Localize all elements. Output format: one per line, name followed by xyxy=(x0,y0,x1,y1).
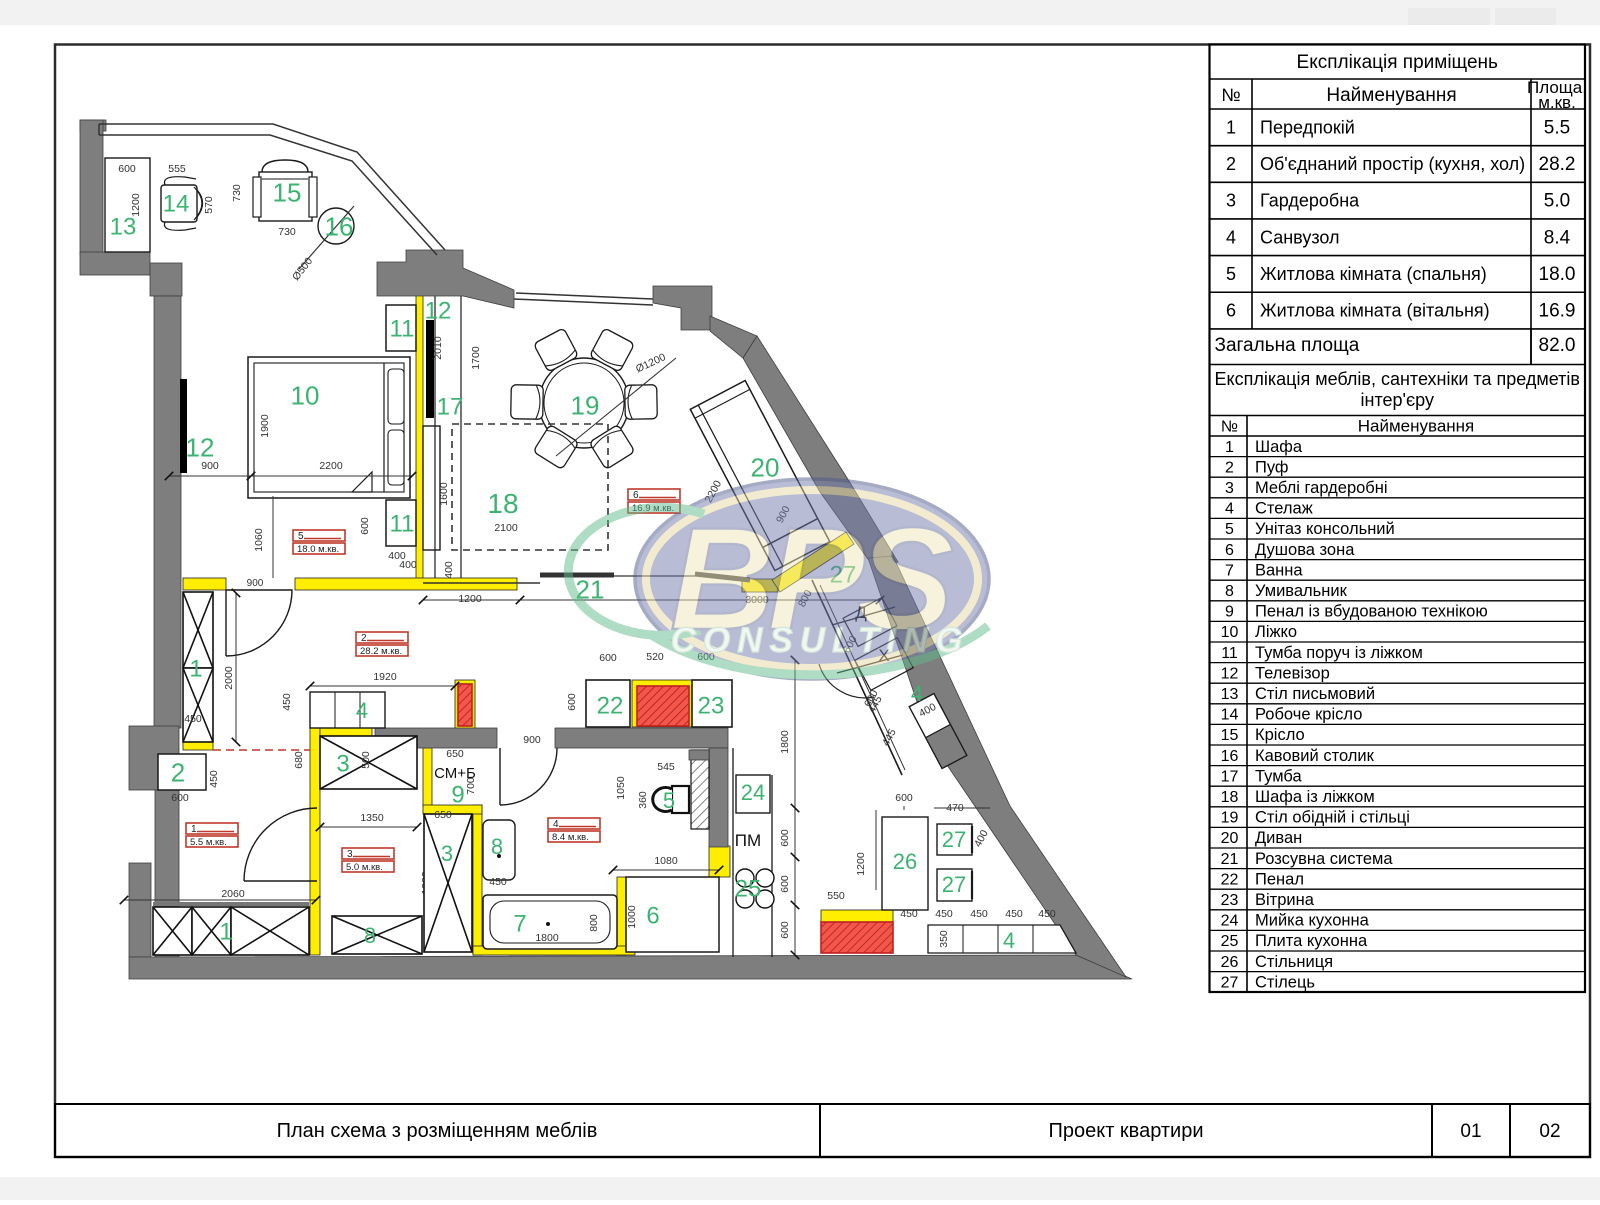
svg-text:18.0: 18.0 xyxy=(1539,264,1576,285)
svg-text:02: 02 xyxy=(1539,1121,1560,1142)
svg-text:18: 18 xyxy=(1221,789,1239,806)
svg-text:Стілець: Стілець xyxy=(1255,973,1315,991)
svg-text:470: 470 xyxy=(946,802,964,814)
svg-text:650: 650 xyxy=(434,809,452,821)
svg-text:450: 450 xyxy=(184,713,202,725)
svg-text:450: 450 xyxy=(935,908,953,920)
svg-text:4: 4 xyxy=(1225,501,1234,518)
svg-text:Санвузол: Санвузол xyxy=(1260,227,1340,247)
svg-text:Шафа із ліжком: Шафа із ліжком xyxy=(1255,788,1375,806)
svg-text:CONSULTING: CONSULTING xyxy=(671,621,970,660)
svg-text:12: 12 xyxy=(1221,665,1239,682)
svg-text:Експлікація приміщень: Експлікація приміщень xyxy=(1297,52,1498,73)
svg-text:650: 650 xyxy=(446,748,464,760)
svg-text:Ванна: Ванна xyxy=(1255,561,1303,579)
svg-text:Душова зона: Душова зона xyxy=(1255,541,1355,559)
svg-text:Житлова кімната (вітальня): Житлова кімната (вітальня) xyxy=(1260,301,1490,321)
svg-text:Кавовий столик: Кавовий столик xyxy=(1255,747,1375,765)
svg-text:10: 10 xyxy=(291,380,320,410)
svg-text:5.5 м.кв.: 5.5 м.кв. xyxy=(190,837,227,848)
svg-text:1: 1 xyxy=(1226,117,1236,137)
svg-text:730: 730 xyxy=(278,226,296,238)
svg-text:22: 22 xyxy=(1221,871,1239,888)
svg-text:8.4 м.кв.: 8.4 м.кв. xyxy=(552,832,589,843)
svg-text:18.0 м.кв.: 18.0 м.кв. xyxy=(297,544,339,555)
svg-text:1050: 1050 xyxy=(615,776,627,800)
svg-text:450: 450 xyxy=(1005,908,1023,920)
svg-text:600: 600 xyxy=(779,921,791,939)
svg-text:Гардеробна: Гардеробна xyxy=(1260,191,1360,211)
svg-text:8.4: 8.4 xyxy=(1544,227,1571,248)
svg-text:600: 600 xyxy=(779,875,791,893)
svg-text:№: № xyxy=(1221,85,1240,105)
svg-text:1: 1 xyxy=(1225,439,1234,456)
svg-text:450: 450 xyxy=(1038,908,1056,920)
svg-text:Пуф: Пуф xyxy=(1255,458,1289,476)
svg-text:1: 1 xyxy=(219,919,232,946)
svg-text:15: 15 xyxy=(1221,727,1239,744)
svg-text:1080: 1080 xyxy=(654,855,678,867)
svg-text:7: 7 xyxy=(513,911,526,938)
svg-text:11: 11 xyxy=(1221,645,1238,662)
svg-text:6: 6 xyxy=(633,490,639,501)
svg-text:8: 8 xyxy=(1225,583,1234,600)
svg-text:19: 19 xyxy=(1221,810,1239,827)
svg-text:10: 10 xyxy=(1221,624,1239,641)
svg-text:4: 4 xyxy=(1226,227,1236,247)
svg-text:Диван: Диван xyxy=(1255,829,1302,847)
svg-text:5.0 м.кв.: 5.0 м.кв. xyxy=(346,862,383,873)
svg-text:545: 545 xyxy=(657,761,675,773)
svg-text:400: 400 xyxy=(388,550,406,562)
svg-text:350: 350 xyxy=(938,930,950,948)
svg-text:12: 12 xyxy=(425,298,452,325)
svg-text:23: 23 xyxy=(698,693,725,720)
svg-text:2200: 2200 xyxy=(319,460,343,472)
svg-text:6: 6 xyxy=(646,903,659,930)
svg-text:25: 25 xyxy=(1221,933,1239,950)
svg-text:5.5: 5.5 xyxy=(1544,117,1570,138)
svg-text:450: 450 xyxy=(900,908,918,920)
svg-text:5: 5 xyxy=(663,788,675,813)
svg-text:Найменування: Найменування xyxy=(1326,85,1456,106)
svg-text:1800: 1800 xyxy=(535,932,559,944)
svg-text:360: 360 xyxy=(637,791,649,809)
svg-text:600: 600 xyxy=(118,163,136,175)
svg-text:4: 4 xyxy=(356,698,368,723)
svg-text:2010: 2010 xyxy=(432,336,444,360)
svg-text:2100: 2100 xyxy=(494,522,518,534)
svg-text:5: 5 xyxy=(1226,264,1236,284)
svg-text:1900: 1900 xyxy=(259,414,271,438)
svg-text:8: 8 xyxy=(364,923,376,948)
svg-text:19: 19 xyxy=(571,390,600,420)
svg-text:24: 24 xyxy=(741,780,765,805)
svg-text:№: № xyxy=(1221,419,1238,436)
svg-text:Плита кухонна: Плита кухонна xyxy=(1255,932,1368,950)
svg-text:16.9: 16.9 xyxy=(1539,301,1576,322)
svg-text:800: 800 xyxy=(588,914,600,932)
svg-text:Унітаз консольний: Унітаз консольний xyxy=(1255,520,1395,538)
svg-text:01: 01 xyxy=(1460,1121,1481,1142)
svg-text:Робоче крісло: Робоче крісло xyxy=(1255,706,1362,724)
svg-text:1800: 1800 xyxy=(779,730,791,754)
svg-text:2000: 2000 xyxy=(223,666,235,690)
svg-text:6: 6 xyxy=(1226,301,1236,321)
svg-text:8: 8 xyxy=(491,834,503,859)
svg-text:27: 27 xyxy=(1221,974,1239,991)
svg-text:600: 600 xyxy=(779,829,791,847)
svg-text:Експлікація меблів, сантехніки: Експлікація меблів, сантехніки та предме… xyxy=(1215,369,1580,389)
svg-text:1920: 1920 xyxy=(373,671,397,683)
svg-text:Тумба: Тумба xyxy=(1255,767,1302,785)
svg-text:4: 4 xyxy=(911,681,923,706)
svg-text:9: 9 xyxy=(451,782,464,809)
svg-text:450: 450 xyxy=(489,876,507,888)
svg-text:План схема з розміщенням меблі: План схема з розміщенням меблів xyxy=(277,1120,598,1142)
svg-text:900: 900 xyxy=(247,578,264,589)
svg-text:13: 13 xyxy=(1221,686,1239,703)
svg-text:18: 18 xyxy=(487,488,518,519)
svg-text:1350: 1350 xyxy=(360,812,384,824)
svg-text:Стіл письмовий: Стіл письмовий xyxy=(1255,685,1375,703)
svg-text:24: 24 xyxy=(1221,913,1239,930)
svg-text:Об'єднаний простір (кухня, хол: Об'єднаний простір (кухня, хол) xyxy=(1260,154,1525,174)
svg-text:27: 27 xyxy=(942,827,966,852)
svg-text:Проект квартири: Проект квартири xyxy=(1048,1120,1203,1142)
svg-text:2: 2 xyxy=(361,633,367,644)
svg-text:20: 20 xyxy=(1221,830,1239,847)
svg-text:600: 600 xyxy=(171,792,189,804)
svg-text:26: 26 xyxy=(893,849,917,874)
svg-text:Вітрина: Вітрина xyxy=(1255,891,1315,909)
svg-text:1000: 1000 xyxy=(626,905,638,929)
svg-text:Тумба поруч із ліжком: Тумба поруч із ліжком xyxy=(1255,644,1423,662)
svg-text:1: 1 xyxy=(191,824,197,835)
svg-text:680: 680 xyxy=(293,751,305,769)
svg-text:3: 3 xyxy=(347,849,353,860)
svg-text:3: 3 xyxy=(441,841,453,866)
svg-text:Ліжко: Ліжко xyxy=(1255,623,1297,641)
svg-text:Мийка кухонна: Мийка кухонна xyxy=(1255,912,1370,930)
svg-text:15: 15 xyxy=(273,177,302,207)
svg-text:82.0: 82.0 xyxy=(1539,335,1576,356)
svg-text:13: 13 xyxy=(110,214,137,241)
svg-text:Найменування: Найменування xyxy=(1358,417,1475,436)
svg-text:Загальна площа: Загальна площа xyxy=(1215,335,1360,356)
svg-text:22: 22 xyxy=(597,693,624,720)
svg-text:Передпокій: Передпокій xyxy=(1260,117,1355,137)
svg-text:16: 16 xyxy=(325,211,354,241)
svg-text:2: 2 xyxy=(171,757,185,787)
svg-text:550: 550 xyxy=(827,890,845,902)
svg-text:11: 11 xyxy=(390,316,415,343)
svg-text:23: 23 xyxy=(1221,892,1239,909)
svg-text:1200: 1200 xyxy=(458,593,482,605)
svg-text:Стіл обідній і стільці: Стіл обідній і стільці xyxy=(1255,809,1410,827)
svg-text:2: 2 xyxy=(1226,154,1236,174)
svg-text:СМ+Б: СМ+Б xyxy=(434,765,476,782)
svg-text:Меблі гардеробні: Меблі гардеробні xyxy=(1255,479,1388,497)
svg-text:730: 730 xyxy=(231,184,243,202)
svg-text:Розсувна система: Розсувна система xyxy=(1255,850,1393,868)
svg-text:11: 11 xyxy=(390,511,415,538)
svg-text:450: 450 xyxy=(281,693,293,711)
svg-text:5: 5 xyxy=(298,531,304,542)
svg-text:25: 25 xyxy=(735,876,762,903)
svg-text:4: 4 xyxy=(1003,928,1015,953)
svg-text:17: 17 xyxy=(1221,768,1239,785)
svg-text:1600: 1600 xyxy=(438,482,450,506)
svg-text:ПМ: ПМ xyxy=(735,831,761,850)
svg-text:555: 555 xyxy=(168,163,186,175)
svg-text:1060: 1060 xyxy=(253,528,265,552)
svg-text:9: 9 xyxy=(1225,604,1234,621)
svg-text:Шафа: Шафа xyxy=(1255,438,1303,456)
svg-text:3: 3 xyxy=(336,751,349,778)
svg-text:1200: 1200 xyxy=(855,852,867,876)
svg-text:500: 500 xyxy=(360,751,372,769)
svg-text:17: 17 xyxy=(437,394,464,421)
svg-text:інтер'єру: інтер'єру xyxy=(1361,390,1434,410)
svg-text:Крісло: Крісло xyxy=(1255,726,1305,744)
svg-text:28.2: 28.2 xyxy=(1539,154,1576,175)
svg-text:600: 600 xyxy=(599,652,617,664)
svg-text:900: 900 xyxy=(523,734,541,746)
svg-text:5.0: 5.0 xyxy=(1544,191,1570,212)
svg-text:Пенал із вбудованою технікою: Пенал із вбудованою технікою xyxy=(1255,603,1488,621)
svg-text:3: 3 xyxy=(1226,191,1236,211)
svg-text:600: 600 xyxy=(895,792,913,804)
svg-text:28.2 м.кв.: 28.2 м.кв. xyxy=(360,646,402,657)
svg-text:Умивальник: Умивальник xyxy=(1255,582,1348,600)
svg-text:1: 1 xyxy=(189,656,202,683)
svg-text:12: 12 xyxy=(186,432,215,462)
svg-text:Телевізор: Телевізор xyxy=(1255,664,1330,682)
svg-text:Пенал: Пенал xyxy=(1255,870,1304,888)
svg-text:4: 4 xyxy=(553,819,559,830)
svg-text:6: 6 xyxy=(1225,542,1234,559)
svg-text:Стелаж: Стелаж xyxy=(1255,500,1313,518)
svg-text:450: 450 xyxy=(970,908,988,920)
svg-text:600: 600 xyxy=(566,693,578,711)
svg-text:5: 5 xyxy=(1225,521,1234,538)
svg-text:3: 3 xyxy=(1225,480,1234,497)
svg-text:2060: 2060 xyxy=(221,888,245,900)
svg-text:16: 16 xyxy=(1221,748,1239,765)
svg-text:21: 21 xyxy=(1221,851,1239,868)
svg-text:Житлова кімната (спальня): Житлова кімната (спальня) xyxy=(1260,264,1487,284)
svg-text:450: 450 xyxy=(208,770,220,788)
svg-text:400: 400 xyxy=(443,561,455,579)
svg-text:1700: 1700 xyxy=(470,346,482,370)
svg-text:20: 20 xyxy=(751,452,780,482)
svg-text:26: 26 xyxy=(1221,954,1239,971)
svg-text:14: 14 xyxy=(1221,707,1239,724)
svg-text:27: 27 xyxy=(942,872,966,897)
svg-text:7: 7 xyxy=(1225,562,1234,579)
svg-text:Стільниця: Стільниця xyxy=(1255,953,1333,971)
svg-text:570: 570 xyxy=(203,196,215,214)
svg-text:14: 14 xyxy=(163,191,190,218)
svg-text:2: 2 xyxy=(1225,459,1234,476)
svg-text:600: 600 xyxy=(359,517,371,535)
svg-text:520: 520 xyxy=(646,651,664,663)
